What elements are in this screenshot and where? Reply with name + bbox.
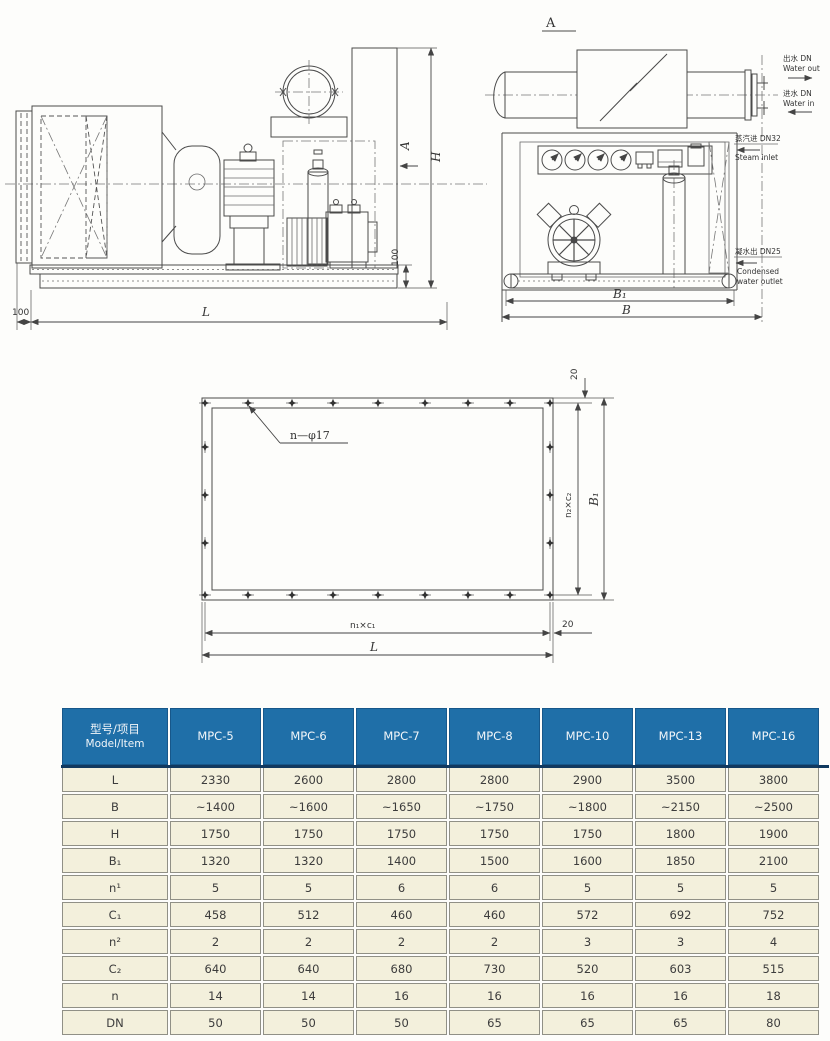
table-cell: 680 (356, 956, 447, 981)
dim-label-B1-flange: B₁ (587, 492, 601, 507)
end-view-drawing: A (485, 16, 820, 322)
table-header-cell: MPC-7 (356, 708, 447, 765)
view-label-A: A (545, 16, 556, 31)
compressor-end (537, 203, 611, 280)
gauge-icon (588, 150, 608, 170)
table-header-cell: MPC-16 (728, 708, 819, 765)
table-cell: 640 (263, 956, 354, 981)
table-cell: ~1600 (263, 794, 354, 819)
table-row-label: H (62, 821, 168, 846)
fan-outlet-flange (271, 60, 347, 137)
table-cell: 1400 (356, 848, 447, 873)
table-cell: 6 (449, 875, 540, 900)
gauge-icon (565, 150, 585, 170)
table-cell: 1750 (542, 821, 633, 846)
table-cell: 460 (449, 902, 540, 927)
air-duct (352, 48, 397, 268)
fan-scroll (174, 146, 220, 254)
table-cell: 752 (728, 902, 819, 927)
table-cell: 520 (542, 956, 633, 981)
dim-label-100-left: 100 (12, 308, 29, 318)
fan-motor (224, 144, 280, 270)
section-arrow-label: A (398, 141, 412, 151)
hole-count-label: n—φ17 (290, 429, 330, 442)
condensed-label-zh: 凝水出 DN25 (735, 246, 781, 256)
table-cell: 2800 (356, 767, 447, 792)
table-cell: 1850 (635, 848, 726, 873)
table-header-divider (61, 765, 829, 768)
table-cell: 5 (542, 875, 633, 900)
table-cell: 2 (170, 929, 261, 954)
drier-tank (663, 160, 685, 288)
steam-inlet-label-zh: 蒸汽进 DN32 (735, 133, 781, 143)
table-cell: 692 (635, 902, 726, 927)
flange-view-drawing: n—φ17 20 n₂×c₂ B₁ n₁×c₁ 20 L (199, 368, 614, 663)
table-cell: 16 (449, 983, 540, 1008)
table-cell: 1320 (263, 848, 354, 873)
table-cell: 6 (356, 875, 447, 900)
table-cell: 65 (635, 1010, 726, 1035)
dim-label-L-side: L (201, 305, 210, 319)
table-row-label: n² (62, 929, 168, 954)
table-header-cell: MPC-8 (449, 708, 540, 765)
table-header-cell: MPC-13 (635, 708, 726, 765)
table-cell: 640 (170, 956, 261, 981)
table-cell: 18 (728, 983, 819, 1008)
table-cell: ~1750 (449, 794, 540, 819)
table-cell: 5 (263, 875, 354, 900)
table-cell: 2100 (728, 848, 819, 873)
table-cell: 16 (635, 983, 726, 1008)
table-cell: 515 (728, 956, 819, 981)
dim-label-100-base: 100 (391, 249, 401, 266)
technical-drawings-canvas: H A 100 100 L A (0, 0, 830, 690)
table-cell: 2900 (542, 767, 633, 792)
table-row-label: B (62, 794, 168, 819)
dim-label-n1c1: n₁×c₁ (350, 621, 376, 631)
table-cell: 512 (263, 902, 354, 927)
table-cell: 16 (356, 983, 447, 1008)
gauge-icon (611, 150, 631, 170)
table-cell: ~1650 (356, 794, 447, 819)
table-cell: 2330 (170, 767, 261, 792)
table-cell: ~2150 (635, 794, 726, 819)
side-view-drawing: H A 100 100 L (5, 48, 487, 330)
water-out-label-en: Water out (783, 64, 820, 73)
table-row-label: DN (62, 1010, 168, 1035)
table-cell: ~2500 (728, 794, 819, 819)
table-cell: 50 (170, 1010, 261, 1035)
table-cell: 1750 (449, 821, 540, 846)
table-cell: 460 (356, 902, 447, 927)
condensed-label-en1: Condensed (737, 267, 779, 276)
dim-label-H: H (429, 151, 443, 163)
table-row-label: n (62, 983, 168, 1008)
header-model-item-en: Model/Item (86, 737, 145, 751)
table-cell: 4 (728, 929, 819, 954)
table-cell: 80 (728, 1010, 819, 1035)
table-cell: 2800 (449, 767, 540, 792)
pipe-annotations: 出水 DN Water out 进水 DN Water in 蒸汽进 DN32 … (734, 53, 820, 286)
dim-label-B-end: B (621, 303, 631, 317)
table-cell: 3 (635, 929, 726, 954)
condensed-label-en2: water outlet (737, 277, 783, 286)
table-cell: 5 (728, 875, 819, 900)
table-header-cell: MPC-6 (263, 708, 354, 765)
table-header-cell: MPC-10 (542, 708, 633, 765)
water-in-label-en: Water in (783, 99, 815, 108)
table-cell: 14 (263, 983, 354, 1008)
dim-label-n2c2: n₂×c₂ (564, 492, 574, 518)
catalog-page: H A 100 100 L A (0, 0, 830, 1041)
table-cell: 1750 (170, 821, 261, 846)
table-cell: 65 (542, 1010, 633, 1035)
table-cell: 1800 (635, 821, 726, 846)
flange-top-margin: 20 (570, 368, 580, 380)
table-cell: 50 (263, 1010, 354, 1035)
header-model-item-zh: 型号/项目 (90, 722, 140, 738)
water-out-label-zh: 出水 DN (783, 53, 812, 63)
table-cell: 1750 (263, 821, 354, 846)
dim-label-B1-end: B₁ (612, 287, 627, 301)
table-row-label: n¹ (62, 875, 168, 900)
table-cell: 1600 (542, 848, 633, 873)
table-cell: 1900 (728, 821, 819, 846)
table-header-model-item: 型号/项目 Model/Item (62, 708, 168, 765)
gauge-icon (542, 150, 562, 170)
control-panel (538, 144, 712, 174)
table-cell: 3500 (635, 767, 726, 792)
table-cell: 50 (356, 1010, 447, 1035)
table-cell: 65 (449, 1010, 540, 1035)
table-cell: 458 (170, 902, 261, 927)
table-cell: 572 (542, 902, 633, 927)
table-cell: 5 (635, 875, 726, 900)
condenser-shell (494, 50, 768, 128)
table-row-label: C₂ (62, 956, 168, 981)
table-cell: 2 (356, 929, 447, 954)
table-cell: 2 (449, 929, 540, 954)
table-cell: 1320 (170, 848, 261, 873)
condenser-coil-block (287, 218, 327, 266)
table-cell: 3800 (728, 767, 819, 792)
steam-inlet-label-en: Steam inlet (735, 153, 778, 162)
brace-frame (709, 142, 729, 273)
table-cell: 2600 (263, 767, 354, 792)
table-header-cell: MPC-5 (170, 708, 261, 765)
dim-label-L-flange: L (369, 640, 378, 654)
base-frame-end (504, 274, 736, 288)
water-in-label-zh: 进水 DN (783, 88, 812, 98)
table-row-label: L (62, 767, 168, 792)
table-cell: 1750 (356, 821, 447, 846)
table-cell: 16 (542, 983, 633, 1008)
table-row-label: C₁ (62, 902, 168, 927)
bolt-holes (199, 399, 556, 599)
table-cell: 2 (263, 929, 354, 954)
table-cell: 603 (635, 956, 726, 981)
table-cell: 5 (170, 875, 261, 900)
table-cell: 730 (449, 956, 540, 981)
table-cell: 14 (170, 983, 261, 1008)
flange-bottom-margin: 20 (562, 620, 574, 630)
receiver-cylinder (308, 150, 328, 264)
table-cell: 1500 (449, 848, 540, 873)
table-cell: 3 (542, 929, 633, 954)
table-cell: ~1400 (170, 794, 261, 819)
spec-table: 型号/项目 Model/Item MPC-5 MPC-6 MPC-7 MPC-8… (62, 708, 822, 1035)
table-cell: ~1800 (542, 794, 633, 819)
table-row-label: B₁ (62, 848, 168, 873)
